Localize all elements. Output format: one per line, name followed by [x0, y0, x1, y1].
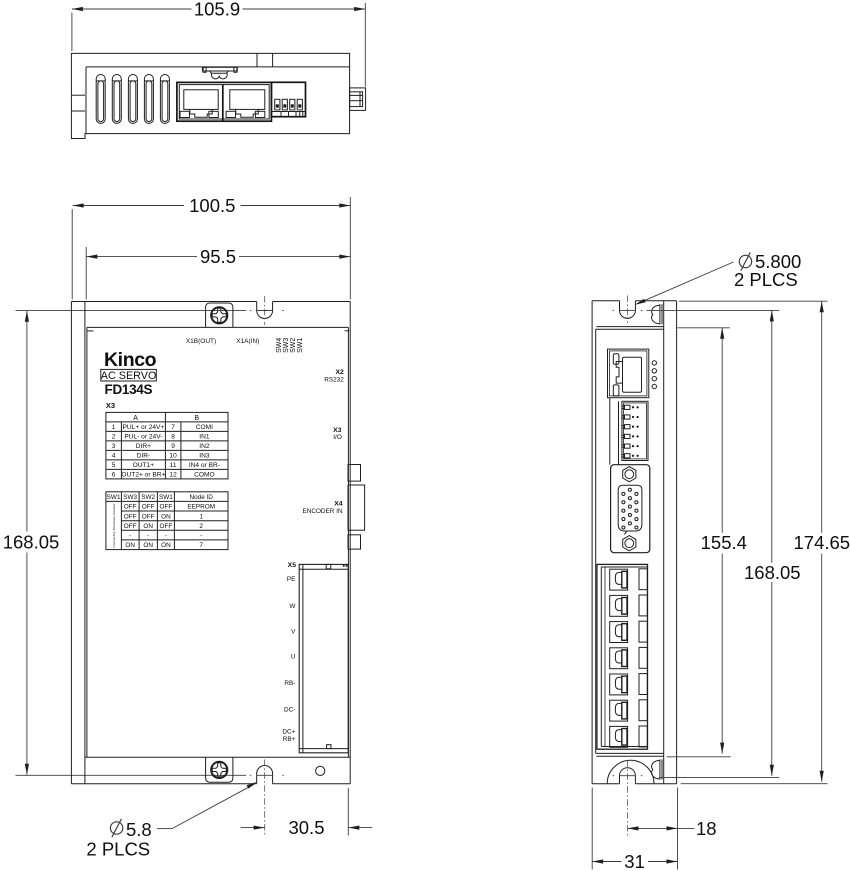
svg-text:174.65: 174.65 — [794, 532, 850, 553]
svg-text:31: 31 — [624, 851, 645, 871]
svg-text:168.05: 168.05 — [3, 531, 60, 552]
svg-text:U: U — [291, 654, 296, 661]
svg-text:100.5: 100.5 — [189, 195, 235, 216]
svg-text:RS232: RS232 — [324, 376, 344, 383]
svg-text:7: 7 — [171, 424, 175, 431]
svg-text:X4: X4 — [334, 501, 343, 508]
svg-text:ON: ON — [143, 542, 153, 549]
svg-text:SW1: SW1 — [107, 494, 121, 501]
svg-text:IN1: IN1 — [199, 434, 210, 441]
svg-text:SW3: SW3 — [123, 494, 137, 501]
svg-text:OFF: OFF — [160, 523, 173, 530]
svg-text:Kinco: Kinco — [104, 349, 157, 371]
svg-text:DC+: DC+ — [282, 729, 295, 736]
svg-text:2 PLCS: 2 PLCS — [86, 839, 150, 860]
svg-text:Internal Bus Terminator Resist: Internal Bus Terminator Resistor — [112, 503, 116, 547]
svg-text:X3: X3 — [333, 427, 342, 434]
svg-text:4: 4 — [112, 453, 116, 460]
svg-text:OFF: OFF — [124, 523, 137, 530]
svg-text:IN2: IN2 — [199, 443, 210, 450]
svg-text:18: 18 — [696, 818, 717, 839]
svg-text:RB+: RB+ — [283, 736, 296, 743]
svg-text:-: - — [147, 533, 149, 540]
svg-text:11: 11 — [170, 462, 177, 469]
svg-text:ENCODER IN: ENCODER IN — [302, 508, 343, 515]
svg-text:IN4 or BR-: IN4 or BR- — [189, 462, 220, 469]
svg-text:V: V — [291, 629, 296, 636]
svg-text:OUT1+: OUT1+ — [133, 462, 155, 469]
svg-text:SW2: SW2 — [290, 338, 297, 353]
svg-text:B: B — [194, 415, 199, 422]
svg-text:3: 3 — [112, 443, 116, 450]
svg-text:SW2: SW2 — [141, 494, 155, 501]
svg-text:X2: X2 — [335, 369, 344, 376]
svg-text:Node ID: Node ID — [189, 494, 213, 501]
svg-text:X1A(IN): X1A(IN) — [236, 338, 259, 345]
svg-text:OUT2+ or BR+: OUT2+ or BR+ — [121, 472, 165, 479]
svg-text:8: 8 — [171, 434, 175, 441]
svg-text:PE: PE — [287, 576, 296, 583]
svg-text:PUL+ or 24V+: PUL+ or 24V+ — [123, 424, 165, 431]
svg-text:1: 1 — [112, 424, 116, 431]
svg-text:X1B(OUT): X1B(OUT) — [186, 338, 216, 345]
svg-text:AC SERVO: AC SERVO — [101, 370, 157, 382]
svg-text:SW1: SW1 — [159, 494, 173, 501]
svg-text:6: 6 — [112, 472, 116, 479]
svg-text:ON: ON — [161, 513, 171, 520]
svg-text:5.8: 5.8 — [126, 819, 152, 840]
svg-text:OFF: OFF — [124, 504, 137, 511]
svg-text:2 PLCS: 2 PLCS — [734, 269, 798, 290]
svg-text:OFF: OFF — [124, 513, 137, 520]
svg-text:-: - — [200, 533, 202, 540]
svg-text:X3: X3 — [106, 401, 115, 410]
svg-text:FD134S: FD134S — [105, 382, 153, 397]
svg-text:95.5: 95.5 — [200, 246, 236, 267]
svg-text:2: 2 — [199, 523, 203, 530]
svg-text:A: A — [133, 415, 138, 422]
svg-text:X5: X5 — [288, 562, 297, 569]
svg-text:-: - — [165, 533, 167, 540]
svg-text:30.5: 30.5 — [288, 817, 324, 838]
svg-text:1: 1 — [199, 513, 203, 520]
svg-text:DIR+: DIR+ — [136, 443, 151, 450]
svg-text:10: 10 — [169, 453, 177, 460]
svg-text:7: 7 — [199, 542, 203, 549]
svg-text:OFF: OFF — [160, 504, 173, 511]
svg-text:9: 9 — [171, 443, 175, 450]
svg-text:COMI: COMI — [196, 424, 213, 431]
svg-text:IN3: IN3 — [199, 453, 210, 460]
svg-text:ON: ON — [161, 542, 171, 549]
svg-text:ON: ON — [125, 542, 135, 549]
svg-text:OFF: OFF — [142, 513, 155, 520]
svg-text:155.4: 155.4 — [701, 532, 747, 553]
svg-text:RB-: RB- — [284, 680, 295, 687]
svg-text:SW4: SW4 — [276, 338, 283, 353]
svg-text:W: W — [289, 603, 296, 610]
svg-text:2: 2 — [112, 434, 116, 441]
svg-text:ON: ON — [143, 523, 153, 530]
svg-text:168.05: 168.05 — [744, 562, 801, 583]
svg-text:PUL- or 24V-: PUL- or 24V- — [124, 434, 162, 441]
svg-text:SW1: SW1 — [297, 338, 304, 353]
svg-text:OFF: OFF — [142, 504, 155, 511]
svg-text:COMO: COMO — [194, 472, 215, 479]
svg-text:DIR-: DIR- — [137, 453, 151, 460]
svg-text:105.9: 105.9 — [194, 0, 240, 19]
svg-text:12: 12 — [169, 472, 177, 479]
svg-text:-: - — [129, 533, 131, 540]
svg-text:I/O: I/O — [333, 434, 342, 441]
svg-text:SW3: SW3 — [283, 338, 290, 353]
svg-text:DC-: DC- — [284, 706, 295, 713]
svg-text:5: 5 — [112, 462, 116, 469]
svg-text:EEPROM: EEPROM — [187, 504, 215, 511]
